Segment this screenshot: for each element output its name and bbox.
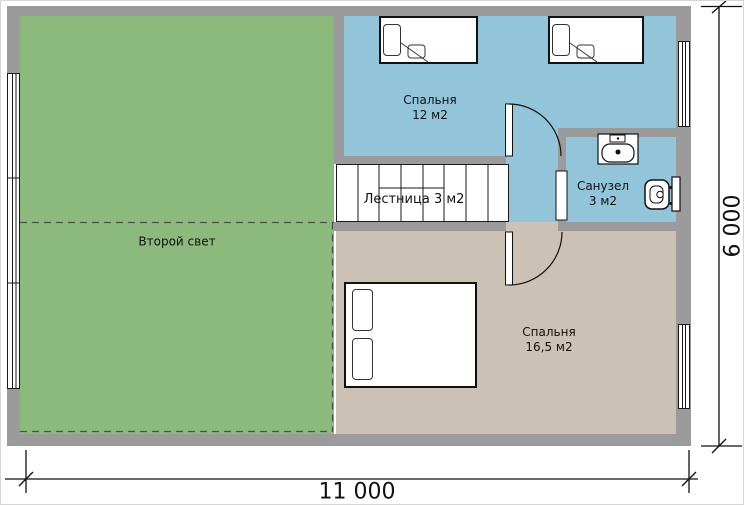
door-arc-icon <box>506 232 563 285</box>
plan-linework <box>1 1 744 505</box>
room-label-bathroom: Санузел 3 м2 <box>577 179 629 209</box>
room-label-bedroom-16: Спальня 16,5 м2 <box>522 325 575 355</box>
room-name: Спальня <box>522 325 575 340</box>
floor-plan: Второй свет Спальня 12 м2 Санузел 3 м2 Л… <box>0 0 744 505</box>
toilet-icon <box>645 177 680 211</box>
door-arc-icon <box>506 104 562 156</box>
room-area: 12 м2 <box>403 108 456 123</box>
room-name: Спальня <box>403 93 456 108</box>
room-label-stairs: Лестница 3 м2 <box>364 192 465 208</box>
bathroom-door-icon <box>556 171 567 220</box>
room-area: 3 м2 <box>577 194 629 209</box>
dimension-height-label: 6 000 <box>721 195 744 258</box>
second-light-dashed-outline <box>20 223 334 433</box>
room-name: Санузел <box>577 179 629 194</box>
window-glazing-lines <box>7 41 686 409</box>
room-area: 16,5 м2 <box>522 340 575 355</box>
sink-icon <box>598 134 638 164</box>
room-label-bedroom-12: Спальня 12 м2 <box>403 93 456 123</box>
dimension-width-label: 11 000 <box>319 480 396 505</box>
room-label-second-light: Второй свет <box>138 235 215 250</box>
dimension-lines <box>5 1 742 493</box>
blanket-fold-icon <box>401 43 597 62</box>
